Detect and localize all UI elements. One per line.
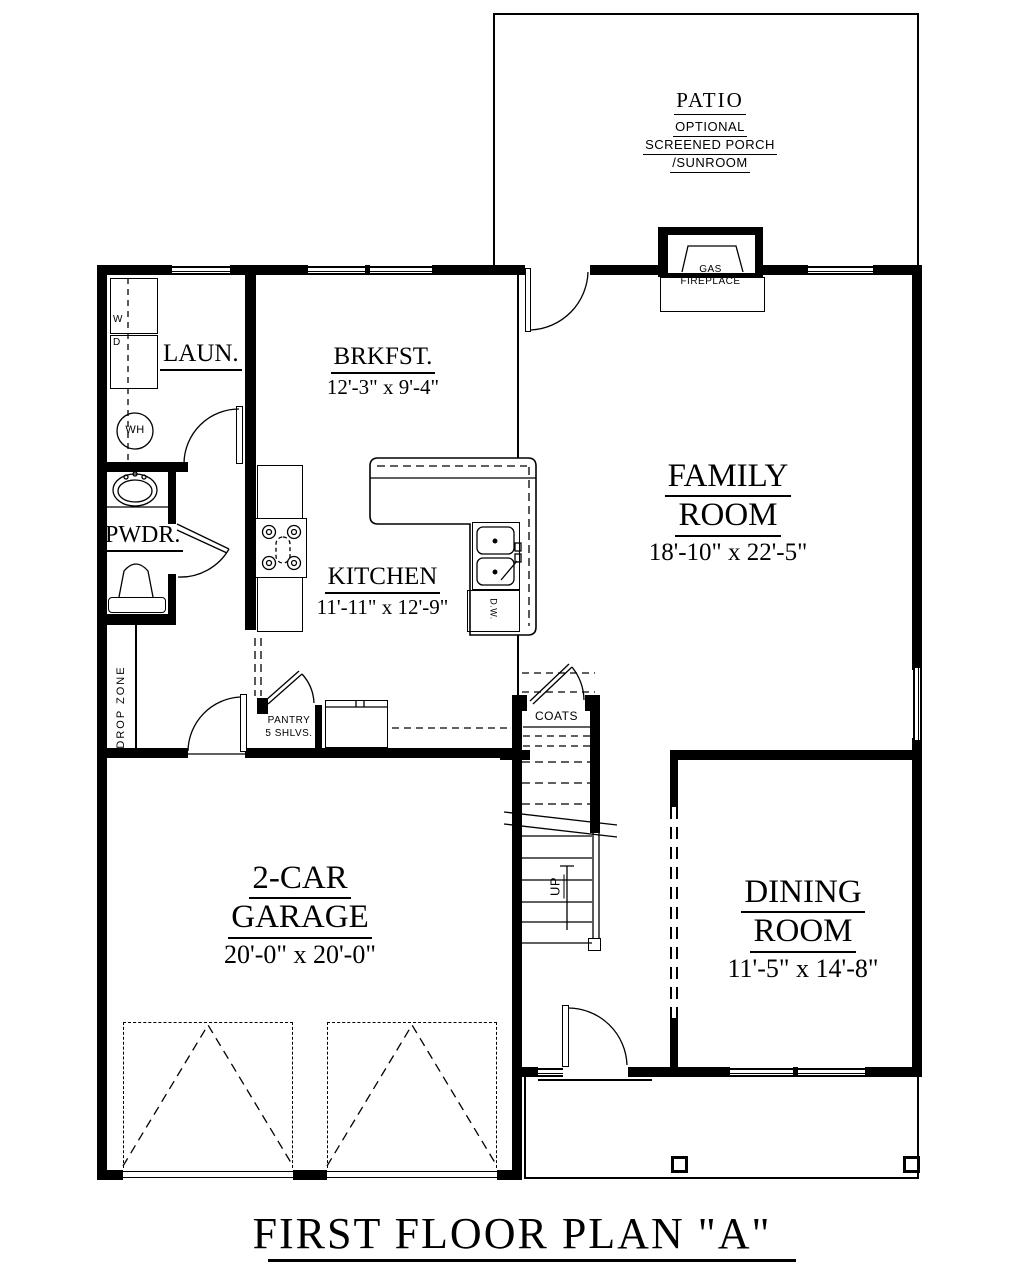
garage-label: 2-CAR GARAGE 20'-0" x 20'-0" [200,860,400,971]
drop-zone-label: DROP ZONE [115,647,127,767]
dryer-label: D [113,337,121,348]
kitchen-sink [477,527,521,585]
cased-opening-dining [671,807,677,1018]
fireplace-label: GAS FIREPLACE [658,264,763,288]
patio-sunroom: /SUNROOM [670,155,750,173]
patio-label: PATIO OPTIONAL SCREENED PORCH /SUNROOM [600,88,820,173]
water-heater-label: WH [117,424,153,436]
plan-linework [0,0,1024,1280]
patio-screened-porch: SCREENED PORCH [643,137,777,155]
pantry-label: PANTRY 5 SHLVS. [260,714,318,740]
powder-sink [105,472,172,507]
plan-title-underline [268,1259,796,1262]
dining-room-label: DINING ROOM 11'-5" x 14'-8" [703,874,903,985]
range-burners [263,526,301,570]
patio-optional: OPTIONAL [673,119,747,137]
plan-title: FIRST FLOOR PLAN "A" [0,1208,1024,1259]
powder-label: PWDR. [102,522,183,552]
laundry-label: LAUN. [160,340,242,371]
patio-name: PATIO [674,88,746,115]
up-label: UP [548,867,565,907]
coats-label: COATS [523,709,590,723]
toilet-bowl [119,564,153,597]
family-room-label: FAMILY ROOM 18'-10" x 22'-5" [628,458,828,568]
kitchen-label: KITCHEN 11'-11" x 12'-9" [305,562,460,620]
floor-plan-canvas: PATIO OPTIONAL SCREENED PORCH /SUNROOM G… [0,0,1024,1280]
stairs [504,762,617,943]
brkfst-label: BRKFST. 12'-3" x 9'-4" [308,342,458,400]
dishwasher-label: D.W. [489,583,499,636]
cased-opening-kitchen [255,638,261,696]
washer-label: W [113,314,123,325]
garage-door-swing-triangles [123,1025,497,1166]
mudroom-bench-detail [188,700,512,754]
